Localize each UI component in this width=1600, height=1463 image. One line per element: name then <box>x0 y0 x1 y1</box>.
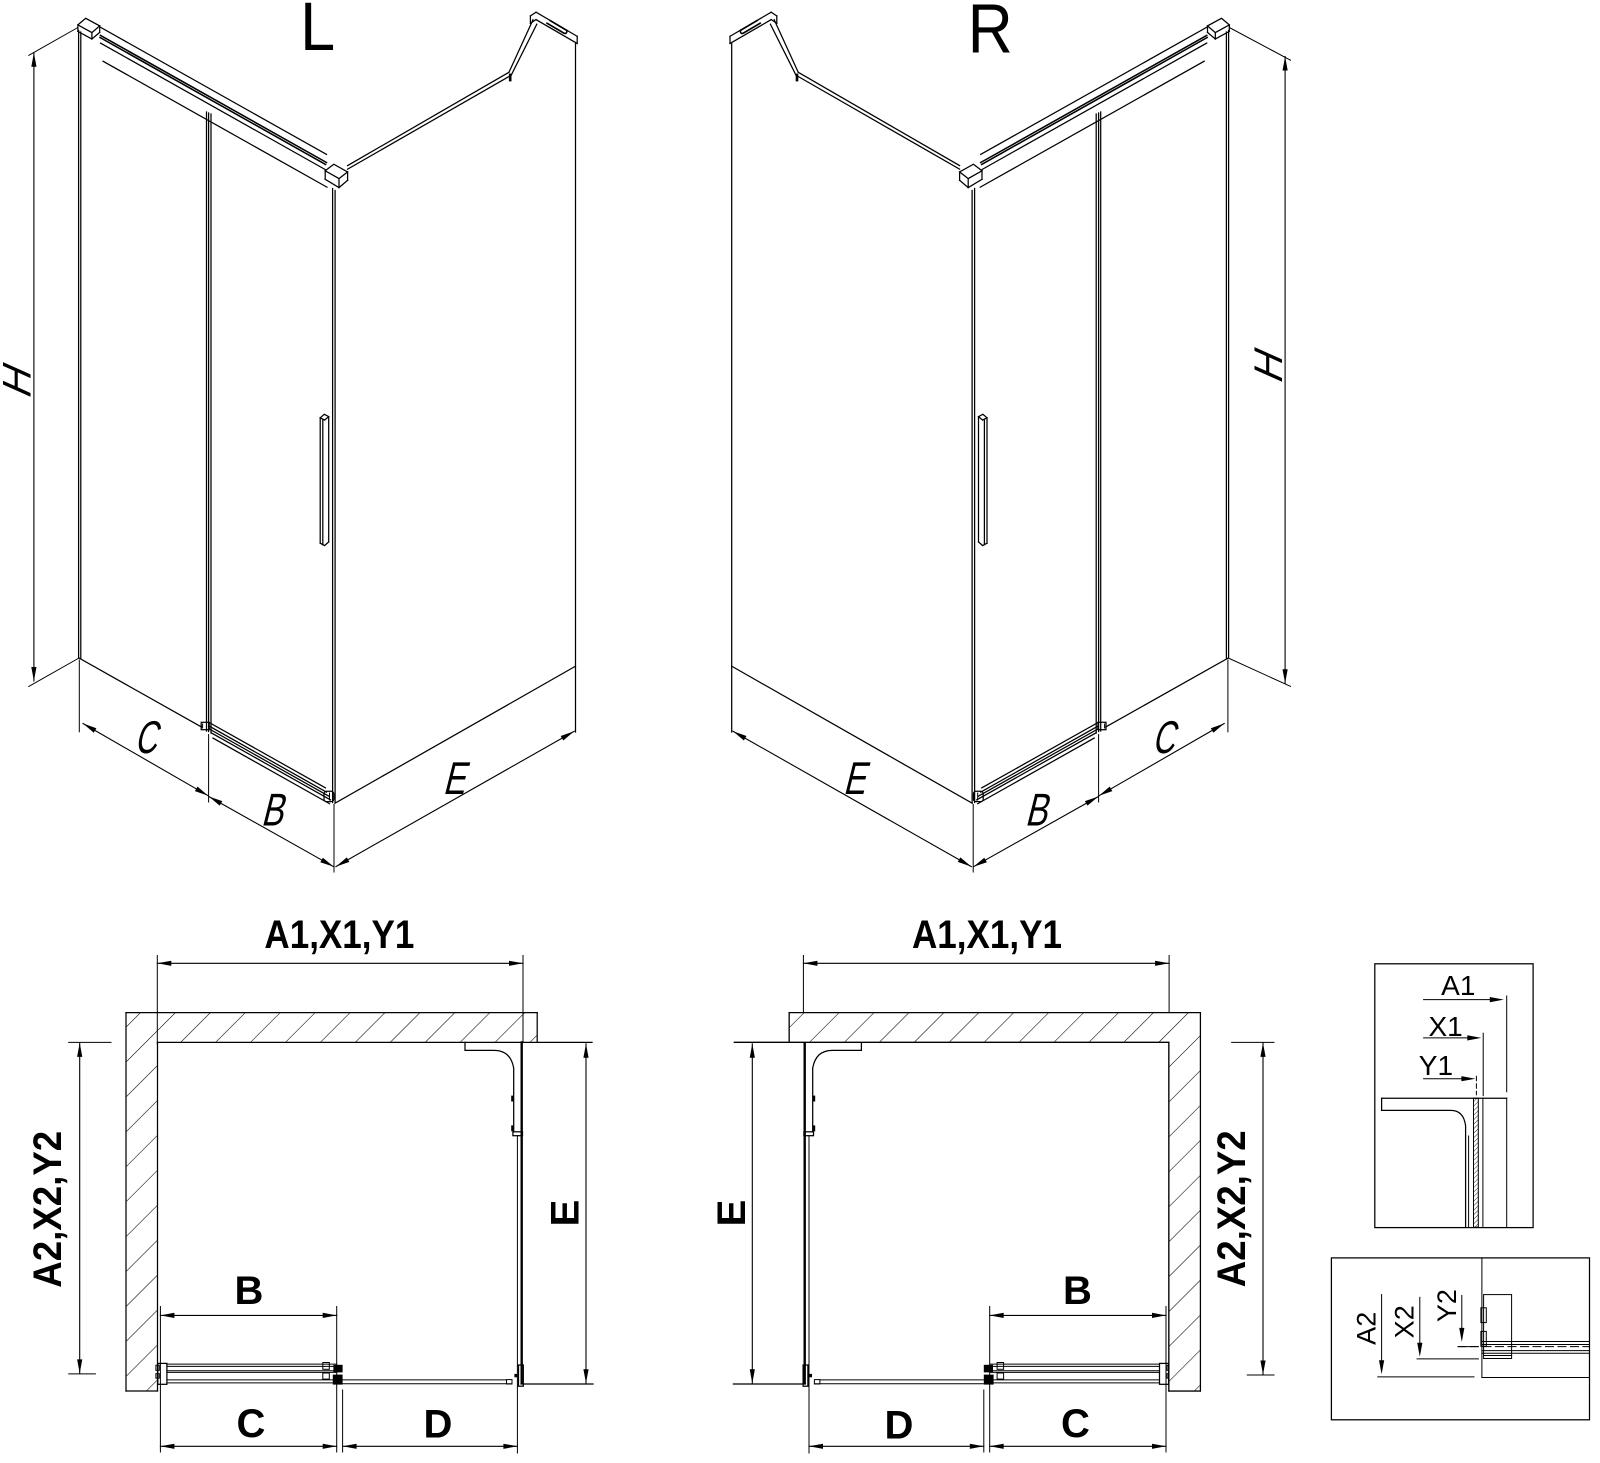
svg-text:X2: X2 <box>1390 1305 1420 1338</box>
svg-text:D: D <box>424 1403 453 1447</box>
svg-text:A1,X1,Y1: A1,X1,Y1 <box>912 913 1062 957</box>
svg-text:E: E <box>544 1200 588 1227</box>
svg-text:L: L <box>300 0 335 65</box>
svg-text:A2: A2 <box>1352 1312 1382 1345</box>
svg-text:A2,X2,Y2: A2,X2,Y2 <box>1210 1130 1254 1287</box>
svg-text:R: R <box>968 0 1013 68</box>
svg-text:C: C <box>237 1402 266 1446</box>
svg-text:A1,X1,Y1: A1,X1,Y1 <box>264 913 414 957</box>
svg-text:B: B <box>1063 1269 1092 1313</box>
svg-text:Y2: Y2 <box>1432 1289 1462 1322</box>
svg-text:C: C <box>1061 1402 1090 1446</box>
svg-text:D: D <box>885 1404 914 1448</box>
svg-text:E: E <box>710 1200 754 1227</box>
svg-text:Y1: Y1 <box>1419 1050 1453 1081</box>
svg-text:B: B <box>235 1269 264 1313</box>
svg-text:X1: X1 <box>1428 1011 1462 1042</box>
svg-text:A1: A1 <box>1441 970 1475 1001</box>
svg-text:A2,X2,Y2: A2,X2,Y2 <box>26 1131 70 1288</box>
